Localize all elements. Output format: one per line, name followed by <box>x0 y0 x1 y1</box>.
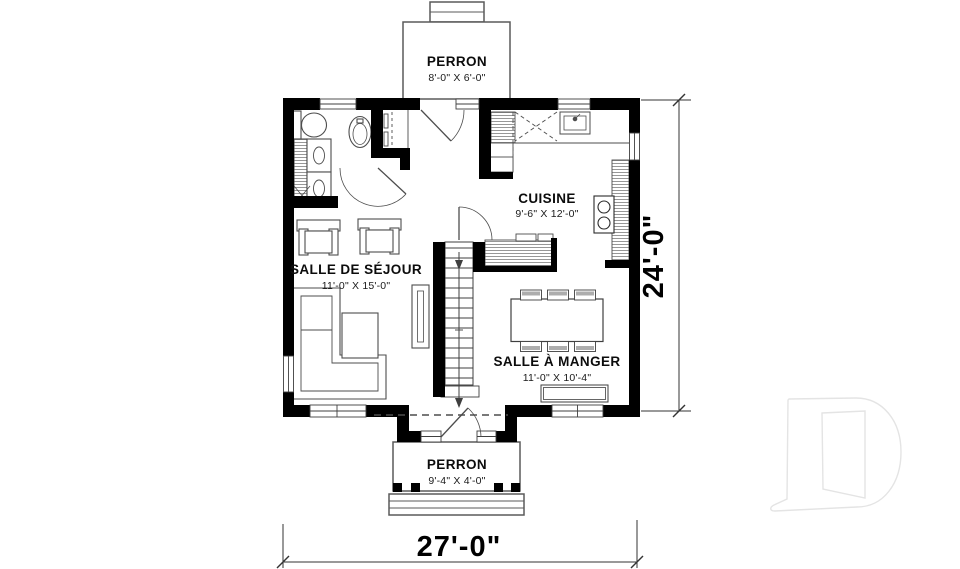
stair-door <box>459 207 492 240</box>
window <box>630 133 640 160</box>
kitchen-counter <box>488 112 629 172</box>
room-label-sejour: SALLE DE SÉJOUR <box>290 262 422 277</box>
bathroom-sink <box>349 117 371 148</box>
dining-table <box>511 299 603 342</box>
door-sidelight <box>421 431 441 442</box>
bottom-porch-steps <box>389 494 524 515</box>
dining-chair <box>575 342 596 352</box>
entry-closet <box>384 110 408 148</box>
coffee-table <box>342 313 378 358</box>
room-label-manger: SALLE À MANGER <box>493 354 620 369</box>
floor-plan-drawing: PERRON 8'-0" X 6'-0" CUISINE 9'-6" X 12'… <box>0 0 960 569</box>
armchair <box>297 220 340 255</box>
window <box>558 99 590 109</box>
dining-chair <box>548 290 569 300</box>
dining-chair <box>548 342 569 352</box>
window <box>284 356 294 392</box>
buffet <box>541 385 608 402</box>
stove <box>594 196 614 233</box>
dining-chair <box>575 290 596 300</box>
builder-logo-d-icon <box>771 398 901 511</box>
dining-chair <box>521 290 542 300</box>
door-sidelight <box>477 431 496 442</box>
room-label-perron-bottom: PERRON <box>427 457 487 472</box>
tv-unit <box>412 285 429 348</box>
window <box>552 405 603 417</box>
floor-plan-page: PERRON 8'-0" X 6'-0" CUISINE 9'-6" X 12'… <box>0 0 960 569</box>
back-door <box>441 408 481 437</box>
room-label-perron-top: PERRON <box>427 54 487 69</box>
room-dims-manger: 11'-0" X 10'-4" <box>523 372 592 384</box>
overall-height-dimension: 24'-0" <box>638 214 670 299</box>
kitchen-sink <box>560 112 590 134</box>
door-sidelight <box>456 99 479 109</box>
top-porch <box>403 2 510 99</box>
overall-width-dimension: 27'-0" <box>417 531 502 563</box>
toilet <box>292 111 327 139</box>
room-dims-cuisine: 9'-6" X 12'-0" <box>515 208 578 220</box>
room-dims-perron-top: 8'-0" X 6'-0" <box>428 72 485 84</box>
room-dims-perron-bottom: 9'-4" X 4'-0" <box>428 475 485 487</box>
faucet-icon <box>357 119 363 123</box>
washer-dryer <box>294 139 331 205</box>
window <box>320 99 356 109</box>
peninsula-counter <box>485 234 555 266</box>
corner-cabinet <box>515 112 557 141</box>
room-dims-sejour: 11'-0" X 15'-0" <box>322 280 391 292</box>
window <box>310 405 366 417</box>
bathroom-door <box>340 168 406 206</box>
room-label-cuisine: CUISINE <box>518 191 576 206</box>
armchair <box>358 219 401 254</box>
front-door <box>421 110 464 141</box>
dining-chair <box>521 342 542 352</box>
